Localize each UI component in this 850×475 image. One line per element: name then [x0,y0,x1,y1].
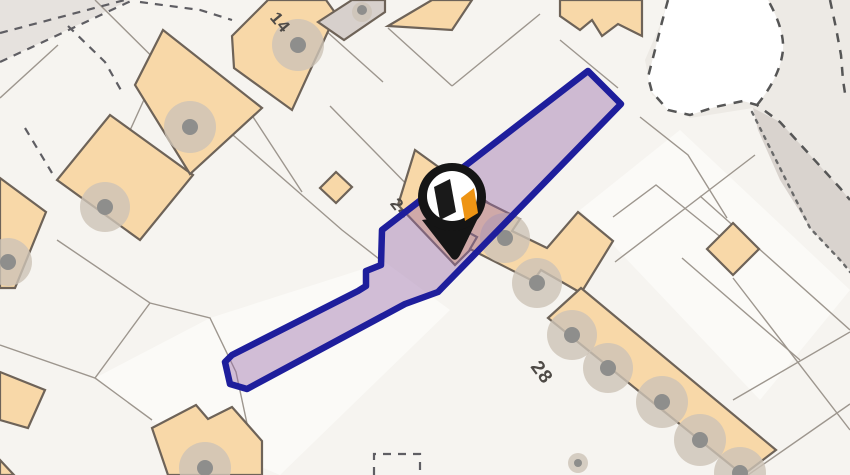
map-canvas[interactable]: 14 24 28 [0,0,850,475]
